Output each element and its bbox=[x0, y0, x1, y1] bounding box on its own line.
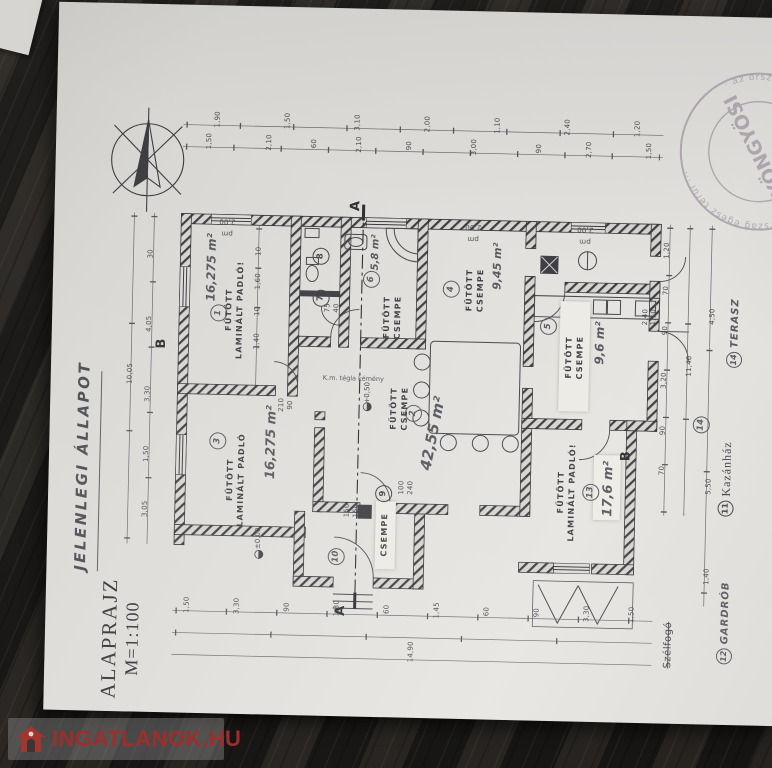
dim-label: 1,50 bbox=[180, 596, 192, 614]
dim-label: 90 bbox=[533, 139, 545, 157]
dim-label: 30 bbox=[144, 245, 156, 263]
corner-shower bbox=[385, 228, 418, 262]
dim-label: 1,50 bbox=[203, 132, 215, 150]
room-label-line: FŰTÖTT bbox=[556, 471, 566, 514]
dim-label: 60 bbox=[480, 602, 492, 620]
door-size: 90 bbox=[284, 396, 296, 414]
room-label-line: CSEMPE bbox=[393, 295, 403, 339]
section-letter-a: A bbox=[348, 201, 363, 211]
toilet bbox=[306, 265, 318, 281]
dim-label: 3,30 bbox=[141, 385, 153, 403]
dim-label: 1,50 bbox=[625, 606, 637, 624]
room-label: FŰTÖTT CSEMPE bbox=[380, 262, 404, 372]
terrace-steps bbox=[537, 585, 618, 625]
dim-label: 90 bbox=[403, 137, 415, 155]
room-label: FŰTÖTT CSEMPE bbox=[562, 297, 587, 417]
dim-label: 4,05 bbox=[143, 315, 155, 333]
room-label-line: FŰTÖTT bbox=[224, 288, 234, 331]
dim-label: 90 bbox=[280, 598, 292, 616]
stamp-center-text: GYÖNGYÖSI bbox=[718, 91, 772, 214]
room-label: FŰTÖTT CSEMPE bbox=[463, 235, 487, 345]
dim-label: 70 bbox=[660, 281, 672, 299]
dim-total: 10,05 bbox=[124, 360, 137, 386]
dim-total: 14,90 bbox=[404, 638, 417, 666]
window-label: pm 2,00 bbox=[570, 235, 600, 248]
section-letter-b: B bbox=[154, 338, 169, 348]
chimney-note: K.m. tégla kémény bbox=[323, 374, 384, 383]
dim-label: 3,30 bbox=[580, 605, 592, 623]
window-size: 2,40 bbox=[639, 308, 651, 326]
legend-gardrob: 12 GARDRÓB bbox=[716, 581, 734, 664]
watermark-bar: INGATLANOK.HU bbox=[8, 718, 224, 760]
dim-label: 90 bbox=[659, 321, 671, 339]
dim-label: 1,10 bbox=[491, 117, 503, 135]
dim-label: 60 bbox=[380, 600, 392, 618]
watermark-text: INGATLANOK.HU bbox=[52, 726, 241, 752]
room-label-line: FŰTÖTT bbox=[225, 458, 235, 501]
dim-label: 10 bbox=[251, 302, 263, 320]
room-label-line: CSEMPE bbox=[475, 268, 485, 312]
dim-label: 2,00 bbox=[421, 115, 433, 133]
dim-label: 60 bbox=[308, 134, 320, 152]
dim-label: 1,50 bbox=[140, 445, 152, 463]
legend-terasz: 14 TERASZ bbox=[726, 298, 744, 368]
dim-total: 11,40 bbox=[683, 352, 696, 380]
dim-label: 70 bbox=[656, 461, 668, 479]
dim-label: 1,30 bbox=[330, 599, 342, 617]
window-label: pm 2,00 bbox=[212, 227, 242, 240]
drawing-title-text: ALAPRAJZ bbox=[95, 553, 124, 724]
door-size: 40 bbox=[330, 299, 342, 317]
section-letter-b: B bbox=[618, 451, 633, 461]
dim-label: 1,90 bbox=[211, 110, 223, 128]
room-label-line: LAMINÁLT PADLÓ! bbox=[234, 261, 245, 360]
dim-label: 90 bbox=[656, 421, 668, 439]
paper-corner-sliver bbox=[0, 0, 46, 55]
dim-label: 1,60 bbox=[252, 272, 264, 290]
room-area: 5,8 m² bbox=[370, 227, 382, 277]
dim-label: 1,45 bbox=[430, 601, 442, 619]
window-size: 150 bbox=[350, 501, 362, 519]
section-line bbox=[355, 205, 364, 609]
dim-label: 1,40 bbox=[700, 564, 713, 588]
legend-number: 14 bbox=[726, 352, 742, 368]
room-label-line: FŰTÖTT bbox=[564, 336, 574, 379]
legend-label: GARDRÓB bbox=[719, 581, 731, 644]
room-label: FŰTÖTT LAMINÁLT PADLÓ bbox=[223, 420, 248, 540]
room-label-line: LAMINÁLT PADLÓ! bbox=[566, 443, 577, 542]
legend-label: Szélfogó bbox=[662, 622, 674, 669]
status-title: JELENLEGI ÁLLAPOT bbox=[71, 371, 103, 572]
photo-scene: 1 FŰTÖTT LAMINÁLT PADLÓ! 16,275 m² 3 FŰT… bbox=[0, 0, 772, 768]
dim-label: 2,10 bbox=[353, 135, 365, 153]
room-label-line: FŰTÖTT bbox=[382, 296, 392, 339]
room-label-line: CSEMPE bbox=[575, 336, 585, 380]
drawing-scale: M=1:100 bbox=[120, 553, 145, 723]
legend-number: 11 bbox=[717, 500, 733, 516]
legend-number: 12 bbox=[716, 648, 732, 664]
room-label-line: LAMINÁLT PADLÓ bbox=[235, 433, 246, 527]
floorplan-sheet: 1 FŰTÖTT LAMINÁLT PADLÓ! 16,275 m² 3 FŰT… bbox=[43, 2, 772, 727]
house-icon bbox=[16, 725, 46, 753]
room-label-line: CSEMPE bbox=[379, 513, 389, 557]
legend-label: Kazánház bbox=[718, 441, 734, 497]
level-label: +0,50 bbox=[363, 382, 371, 404]
dim-label: 1,40 bbox=[250, 332, 262, 350]
legend-label: TERASZ bbox=[729, 298, 741, 348]
room-area: 9,45 m² bbox=[490, 236, 504, 296]
room-label: FŰTÖTT LAMINÁLT PADLÓ! bbox=[222, 250, 247, 370]
room-label-line: CSEMPE bbox=[400, 387, 410, 431]
wc-sink bbox=[305, 228, 319, 237]
room-label-line: FŰTÖTT bbox=[389, 387, 399, 430]
dim-label: 5,50 bbox=[702, 474, 715, 498]
dim-label: 2,70 bbox=[583, 141, 595, 159]
window-label: pm 2,00 bbox=[458, 233, 488, 246]
north-arrow bbox=[111, 107, 185, 213]
dim-label: 3,20 bbox=[658, 371, 670, 389]
dim-label: 2,10 bbox=[263, 133, 275, 151]
room-label-line: FŰTÖTT bbox=[464, 269, 474, 312]
dim-label: 10 bbox=[252, 242, 264, 260]
dim-label: 3,10 bbox=[351, 113, 363, 131]
dim-label: 1,20 bbox=[661, 241, 673, 259]
legend-kazanhaz: 11 Kazánház bbox=[717, 441, 735, 517]
dim-label: 3,05 bbox=[139, 500, 151, 518]
legend-szelfogo-struck: Szélfogó bbox=[662, 622, 674, 669]
room-area: 17,6 m² bbox=[600, 449, 617, 529]
dim-label: 90 bbox=[530, 604, 542, 622]
door-size: 240 bbox=[404, 479, 416, 497]
room-area: 9,6 m² bbox=[592, 313, 607, 373]
dim-label: 2,40 bbox=[561, 118, 573, 136]
level-label: ±0,00 bbox=[254, 528, 262, 550]
room-label: FŰTÖTT LAMINÁLT PADLÓ! bbox=[554, 432, 579, 552]
dim-label: 3,00 bbox=[468, 138, 480, 156]
dim-label: 3,30 bbox=[230, 597, 242, 615]
drawing-title: ALAPRAJZ M=1:100 bbox=[95, 553, 145, 724]
dim-label: 1,50 bbox=[281, 112, 293, 130]
dim-label: 4,50 bbox=[706, 304, 719, 328]
